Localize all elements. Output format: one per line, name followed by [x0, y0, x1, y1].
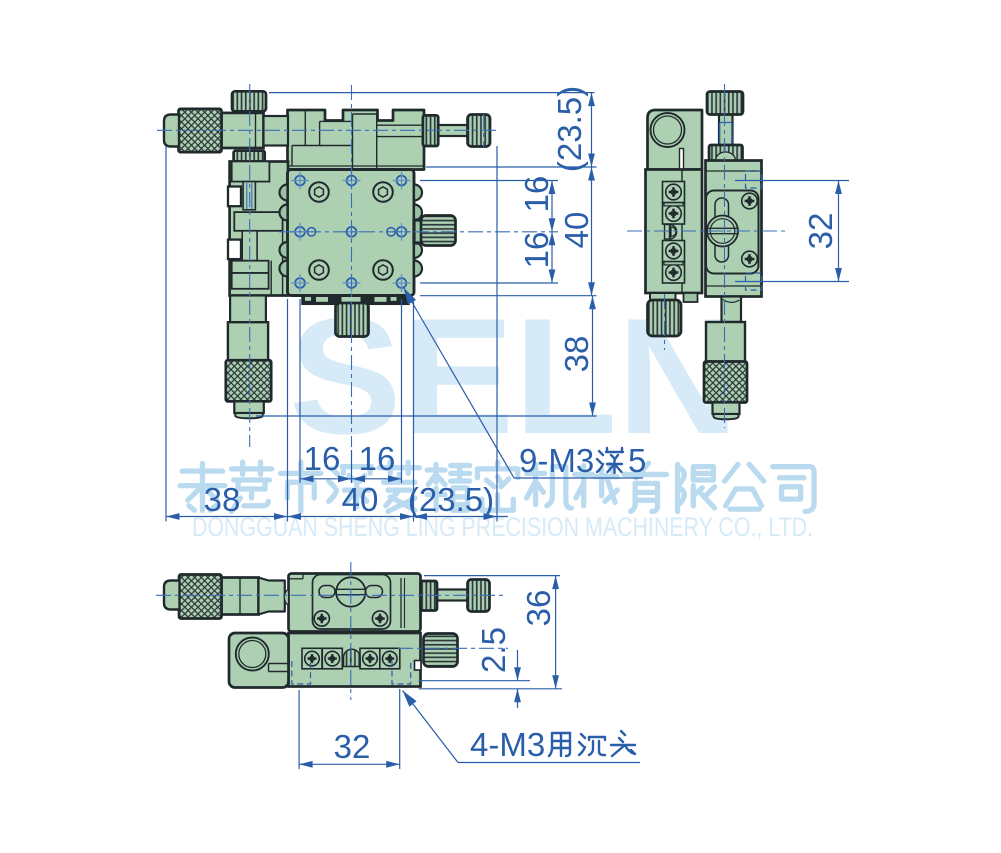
svg-text:16: 16 [518, 232, 555, 269]
svg-text:16: 16 [304, 440, 341, 477]
svg-text:40: 40 [558, 212, 595, 249]
svg-text:38: 38 [558, 336, 595, 373]
svg-text:(23.5): (23.5) [551, 86, 588, 172]
svg-text:(23.5): (23.5) [408, 481, 494, 518]
svg-text:36: 36 [520, 590, 557, 627]
svg-text:16: 16 [359, 440, 396, 477]
svg-text:32: 32 [802, 213, 839, 250]
svg-text:5: 5 [628, 442, 646, 479]
svg-text:16: 16 [518, 176, 555, 213]
svg-text:38: 38 [204, 481, 241, 518]
svg-text:40: 40 [342, 481, 379, 518]
svg-text:32: 32 [334, 728, 371, 765]
svg-text:9-M3: 9-M3 [519, 442, 594, 479]
svg-text:2.5: 2.5 [475, 627, 512, 673]
svg-text:4-M3: 4-M3 [470, 726, 545, 763]
